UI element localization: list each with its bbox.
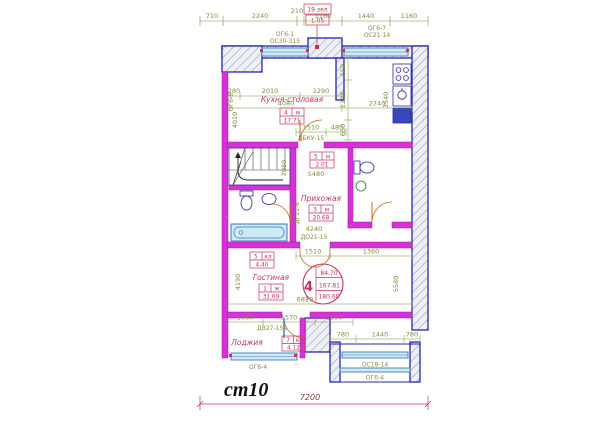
- stamp-number: 4: [304, 280, 313, 295]
- kitchen-appliances: [393, 64, 411, 123]
- dim-loggia-0: 1080: [237, 314, 254, 322]
- loggia-label: Лоджия: [230, 338, 263, 347]
- dim-top-5: 1160: [401, 12, 418, 20]
- flag-anchor: [315, 45, 319, 49]
- dim-top-3: 1160: [315, 12, 332, 20]
- window-label-porch-a: ОС18-14: [362, 362, 389, 369]
- dim-top-0: 710: [206, 12, 218, 20]
- window-porch-outer: [340, 368, 410, 372]
- dim-living-top-1: 1360: [363, 248, 380, 256]
- wall-porch-left: [330, 342, 340, 382]
- wc-right: [354, 161, 392, 222]
- door-label-kitchen-hall: ДБКУ-15: [298, 135, 325, 142]
- loggia-tag-unit: кл: [296, 338, 304, 344]
- window-label-top-right-b: ОС21-14: [364, 32, 391, 39]
- kitchen-tag-num: 4: [284, 111, 288, 117]
- wall-top-bay: [308, 38, 342, 58]
- wall-porch-right: [410, 342, 420, 382]
- bathroom-left: [231, 191, 290, 241]
- toilet-icon-right: [360, 162, 374, 173]
- stamp-line1: 84.70: [320, 270, 337, 277]
- toilet-tank-left: [240, 191, 253, 196]
- hall-tag-num: 3: [313, 208, 317, 214]
- wc-tag-unit: м: [326, 155, 330, 161]
- closet-tag-area: 4.40: [256, 263, 269, 269]
- window-label-top-right-a: ОГ6-7: [368, 25, 386, 32]
- door-label-bath: ДГ21-8: [294, 202, 301, 224]
- closet-tag-num: 5: [254, 255, 258, 261]
- wc-door-arc: [372, 202, 392, 222]
- window-label-loggia: ОГ6-4: [249, 364, 267, 371]
- stamp-line3: 180.60: [319, 294, 340, 301]
- sheet-mark: ст10: [224, 379, 268, 401]
- hall-tag-unit: м: [325, 208, 329, 214]
- dim-porch-2: 780: [406, 331, 418, 339]
- dim-living-left-v: 4190: [234, 274, 242, 291]
- dim-loggia-1: 1570: [281, 314, 298, 322]
- kitchen-label: Кухня-столовая: [261, 95, 324, 104]
- dim-porch-1: 1440: [372, 331, 389, 339]
- stamp-line2: 167.81: [319, 283, 340, 290]
- bath-door-arc: [272, 204, 290, 222]
- window-label-left-side: ОГ6-8: [228, 93, 235, 111]
- dim-living-top-0: 1510: [305, 248, 322, 256]
- wall-hall-living-l: [227, 242, 300, 248]
- dim-mid-0: 1510: [303, 124, 320, 132]
- dim-niche-0: 650: [339, 64, 347, 76]
- toilet-icon-left: [241, 196, 252, 210]
- wall-wc-bottom-r: [392, 222, 412, 228]
- kitchen-tag-area: 17.71: [284, 119, 301, 125]
- wall-kitchen-divider-l: [227, 142, 298, 148]
- toilet-tank-right: [354, 161, 360, 174]
- wall-stairs-bath: [229, 185, 290, 190]
- loggia-tag-area: 4.12: [287, 346, 300, 352]
- window-label-top-left-a: ОГ6-1: [276, 31, 294, 38]
- washbasin-icon-left: [262, 194, 276, 205]
- dim-top-1: 2240: [252, 12, 269, 20]
- stove-icon: [393, 64, 411, 84]
- dim-left-v: 4010: [231, 112, 239, 129]
- floor-plan-svg: 19 зел 1.05 710 2240 210 1160 1440 1160 …: [0, 0, 600, 425]
- wall-living-bottom-l: [227, 312, 282, 318]
- dim-living-right-v: 5580: [392, 276, 400, 293]
- wall-right: [412, 46, 428, 330]
- dim-hall-w: 5480: [308, 170, 325, 178]
- wall-stairs-hall: [290, 148, 296, 242]
- wall-wc-bottom-l: [348, 222, 372, 228]
- dim-mid-1: 480: [331, 124, 343, 132]
- wall-kitchen-divider-r: [324, 142, 412, 148]
- door-label-loggia: ДВ27-15а: [257, 325, 287, 332]
- wc-tag-num: 5: [314, 155, 318, 161]
- washbasin-icon-right: [356, 181, 366, 191]
- closet-tag-unit: кл: [264, 255, 272, 261]
- fridge-icon: [393, 108, 411, 123]
- dim-loggia-2: 1160: [326, 314, 343, 322]
- dim-top-2: 210: [291, 7, 303, 15]
- dim-kitchen-top-0: 280: [228, 87, 240, 95]
- living-label: Гостиная: [253, 273, 290, 282]
- dim-living-span: [227, 300, 412, 308]
- dim-stairs-v: 2080: [280, 160, 288, 177]
- hall-label: Прихожая: [301, 194, 342, 203]
- dim-total-value: 7200: [300, 393, 320, 402]
- stairs-direction-arrow: [235, 152, 241, 158]
- dim-kitchen-right-v: 3540: [382, 92, 390, 109]
- living-tag-area: 31.69: [263, 295, 280, 301]
- window-label-top-left-b: ОС30-315: [270, 38, 300, 45]
- dim-porch-0: 780: [337, 331, 349, 339]
- dim-living-span: 6820: [297, 296, 314, 304]
- door-label-entrance: ДО21-15: [301, 234, 328, 241]
- window-label-porch-b: ОГ6-4: [366, 375, 384, 382]
- wall-loggia-porch-mass: [305, 318, 330, 352]
- dim-top-4: 1440: [358, 12, 375, 20]
- living-tag-num: 1: [263, 287, 267, 293]
- hall-tag-area: 20.68: [313, 216, 330, 222]
- dim-entr: 4240: [306, 225, 323, 233]
- wc-tag-area: 2.01: [316, 163, 329, 169]
- living-tag-unit: ж: [274, 287, 280, 293]
- dim-kitchen-top-2: 1290: [313, 87, 330, 95]
- loggia-tag-num: 7: [286, 338, 290, 344]
- wall-hall-wc: [348, 148, 353, 228]
- kitchen-tag-unit: м: [296, 111, 300, 117]
- wall-topleft-corner: [222, 46, 262, 72]
- dim-niche-1: 1205: [339, 92, 347, 109]
- dim-kitchen-top-1: 2010: [262, 87, 279, 95]
- floor-plan-page: 19 зел 1.05 710 2240 210 1160 1440 1160 …: [0, 0, 600, 425]
